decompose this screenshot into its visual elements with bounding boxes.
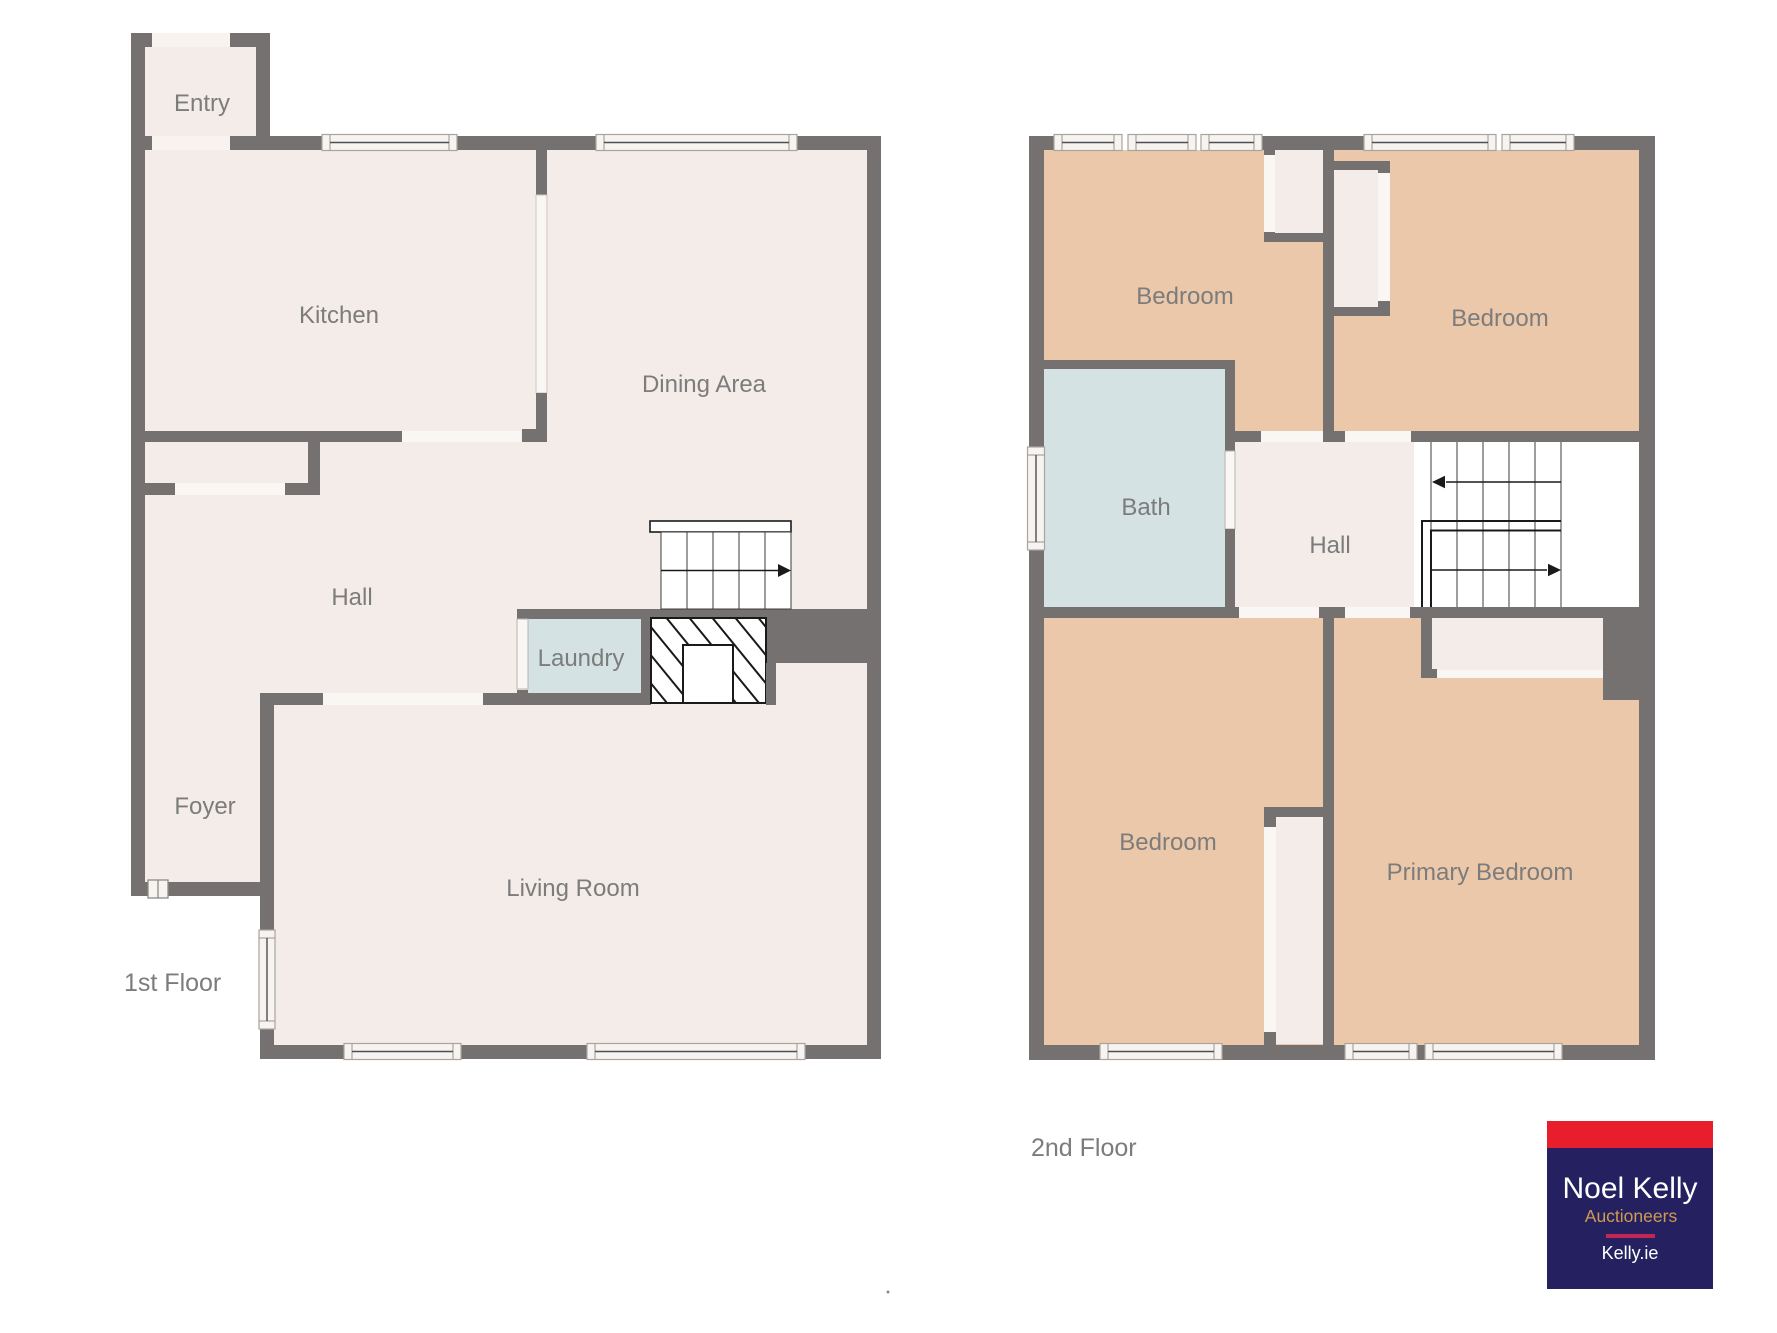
svg-text:Bath: Bath — [1121, 494, 1170, 521]
svg-text:Living Room: Living Room — [506, 875, 639, 902]
svg-text:Auctioneers: Auctioneers — [1585, 1206, 1678, 1226]
svg-text:Primary Bedroom: Primary Bedroom — [1387, 859, 1574, 886]
svg-text:Laundry: Laundry — [538, 645, 625, 672]
svg-text:Entry: Entry — [174, 90, 230, 117]
svg-text:Bedroom: Bedroom — [1451, 305, 1548, 332]
svg-text:Dining Area: Dining Area — [642, 371, 767, 398]
svg-text:Kelly.ie: Kelly.ie — [1602, 1243, 1659, 1263]
svg-text:Foyer: Foyer — [174, 793, 235, 820]
svg-text:1st Floor: 1st Floor — [124, 969, 221, 997]
svg-text:2nd Floor: 2nd Floor — [1031, 1134, 1137, 1162]
svg-text:Hall: Hall — [331, 584, 372, 611]
svg-text:Bedroom: Bedroom — [1136, 283, 1233, 310]
svg-text:Hall: Hall — [1309, 532, 1350, 559]
svg-text:Kitchen: Kitchen — [299, 302, 379, 329]
svg-text:Bedroom: Bedroom — [1119, 829, 1216, 856]
svg-text:Noel Kelly: Noel Kelly — [1562, 1172, 1697, 1205]
